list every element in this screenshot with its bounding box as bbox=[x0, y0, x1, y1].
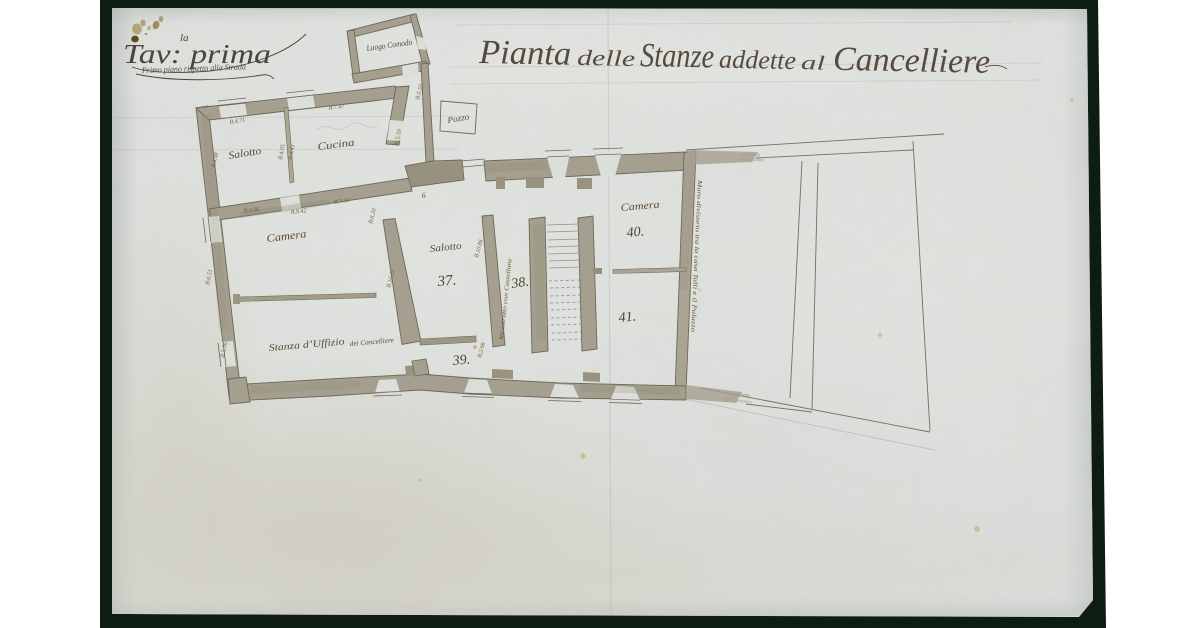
svg-text:39.: 39. bbox=[451, 353, 471, 370]
svg-text:Pianta: Pianta bbox=[478, 34, 572, 73]
svg-text:37.: 37. bbox=[436, 272, 457, 290]
svg-text:Stanze: Stanze bbox=[640, 37, 715, 75]
svg-text:Cancelliere: Cancelliere bbox=[833, 41, 991, 81]
svg-text:delle: delle bbox=[577, 45, 636, 71]
svg-text:addette: addette bbox=[719, 45, 797, 75]
svg-text:38.: 38. bbox=[509, 275, 529, 292]
svg-text:40.: 40. bbox=[626, 225, 645, 241]
svg-text:al: al bbox=[801, 52, 826, 74]
svg-text:41.: 41. bbox=[618, 310, 637, 326]
